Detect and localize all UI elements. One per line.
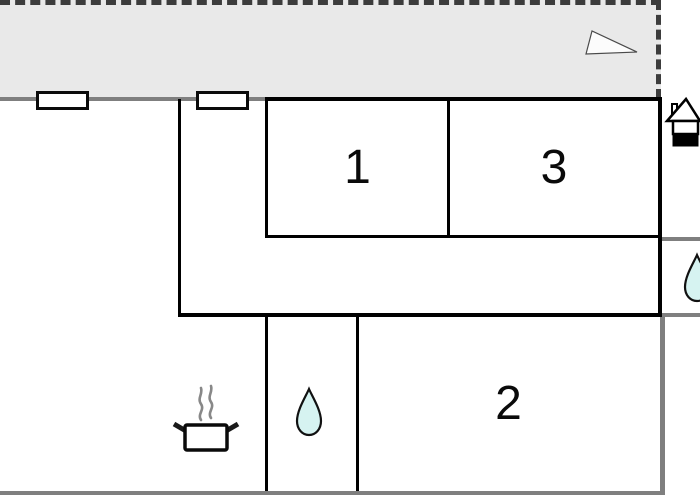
cooking-pot-icon	[170, 382, 240, 452]
wall-exterior-bottom	[0, 491, 665, 495]
room-3-number: 3	[541, 144, 568, 192]
boundary-dashed-top	[0, 0, 661, 5]
room-1-label: 1	[268, 101, 447, 235]
room-2-number: 2	[495, 380, 522, 428]
house-entrance-icon	[664, 95, 700, 147]
terrace-area	[0, 0, 661, 99]
water-drop-icon	[294, 386, 324, 438]
wall-right-interior	[658, 97, 662, 317]
wall-hall-left	[178, 99, 181, 316]
water-drop-icon	[682, 252, 700, 304]
wall-right-stub-lower	[662, 313, 700, 317]
room-3-label: 3	[450, 101, 658, 235]
triangle-marker-icon	[584, 29, 642, 57]
window	[36, 91, 89, 110]
floor-plan: 1 3 2	[0, 0, 700, 500]
room-2-label: 2	[357, 317, 660, 491]
wall-bathroom-left	[265, 315, 268, 493]
wall-rooms-bottom	[265, 235, 662, 238]
boundary-dashed-right	[656, 0, 661, 99]
wall-right-stub-upper	[662, 237, 700, 241]
room-1-number: 1	[344, 144, 371, 192]
window	[196, 91, 249, 110]
wall-exterior-right	[660, 317, 665, 495]
